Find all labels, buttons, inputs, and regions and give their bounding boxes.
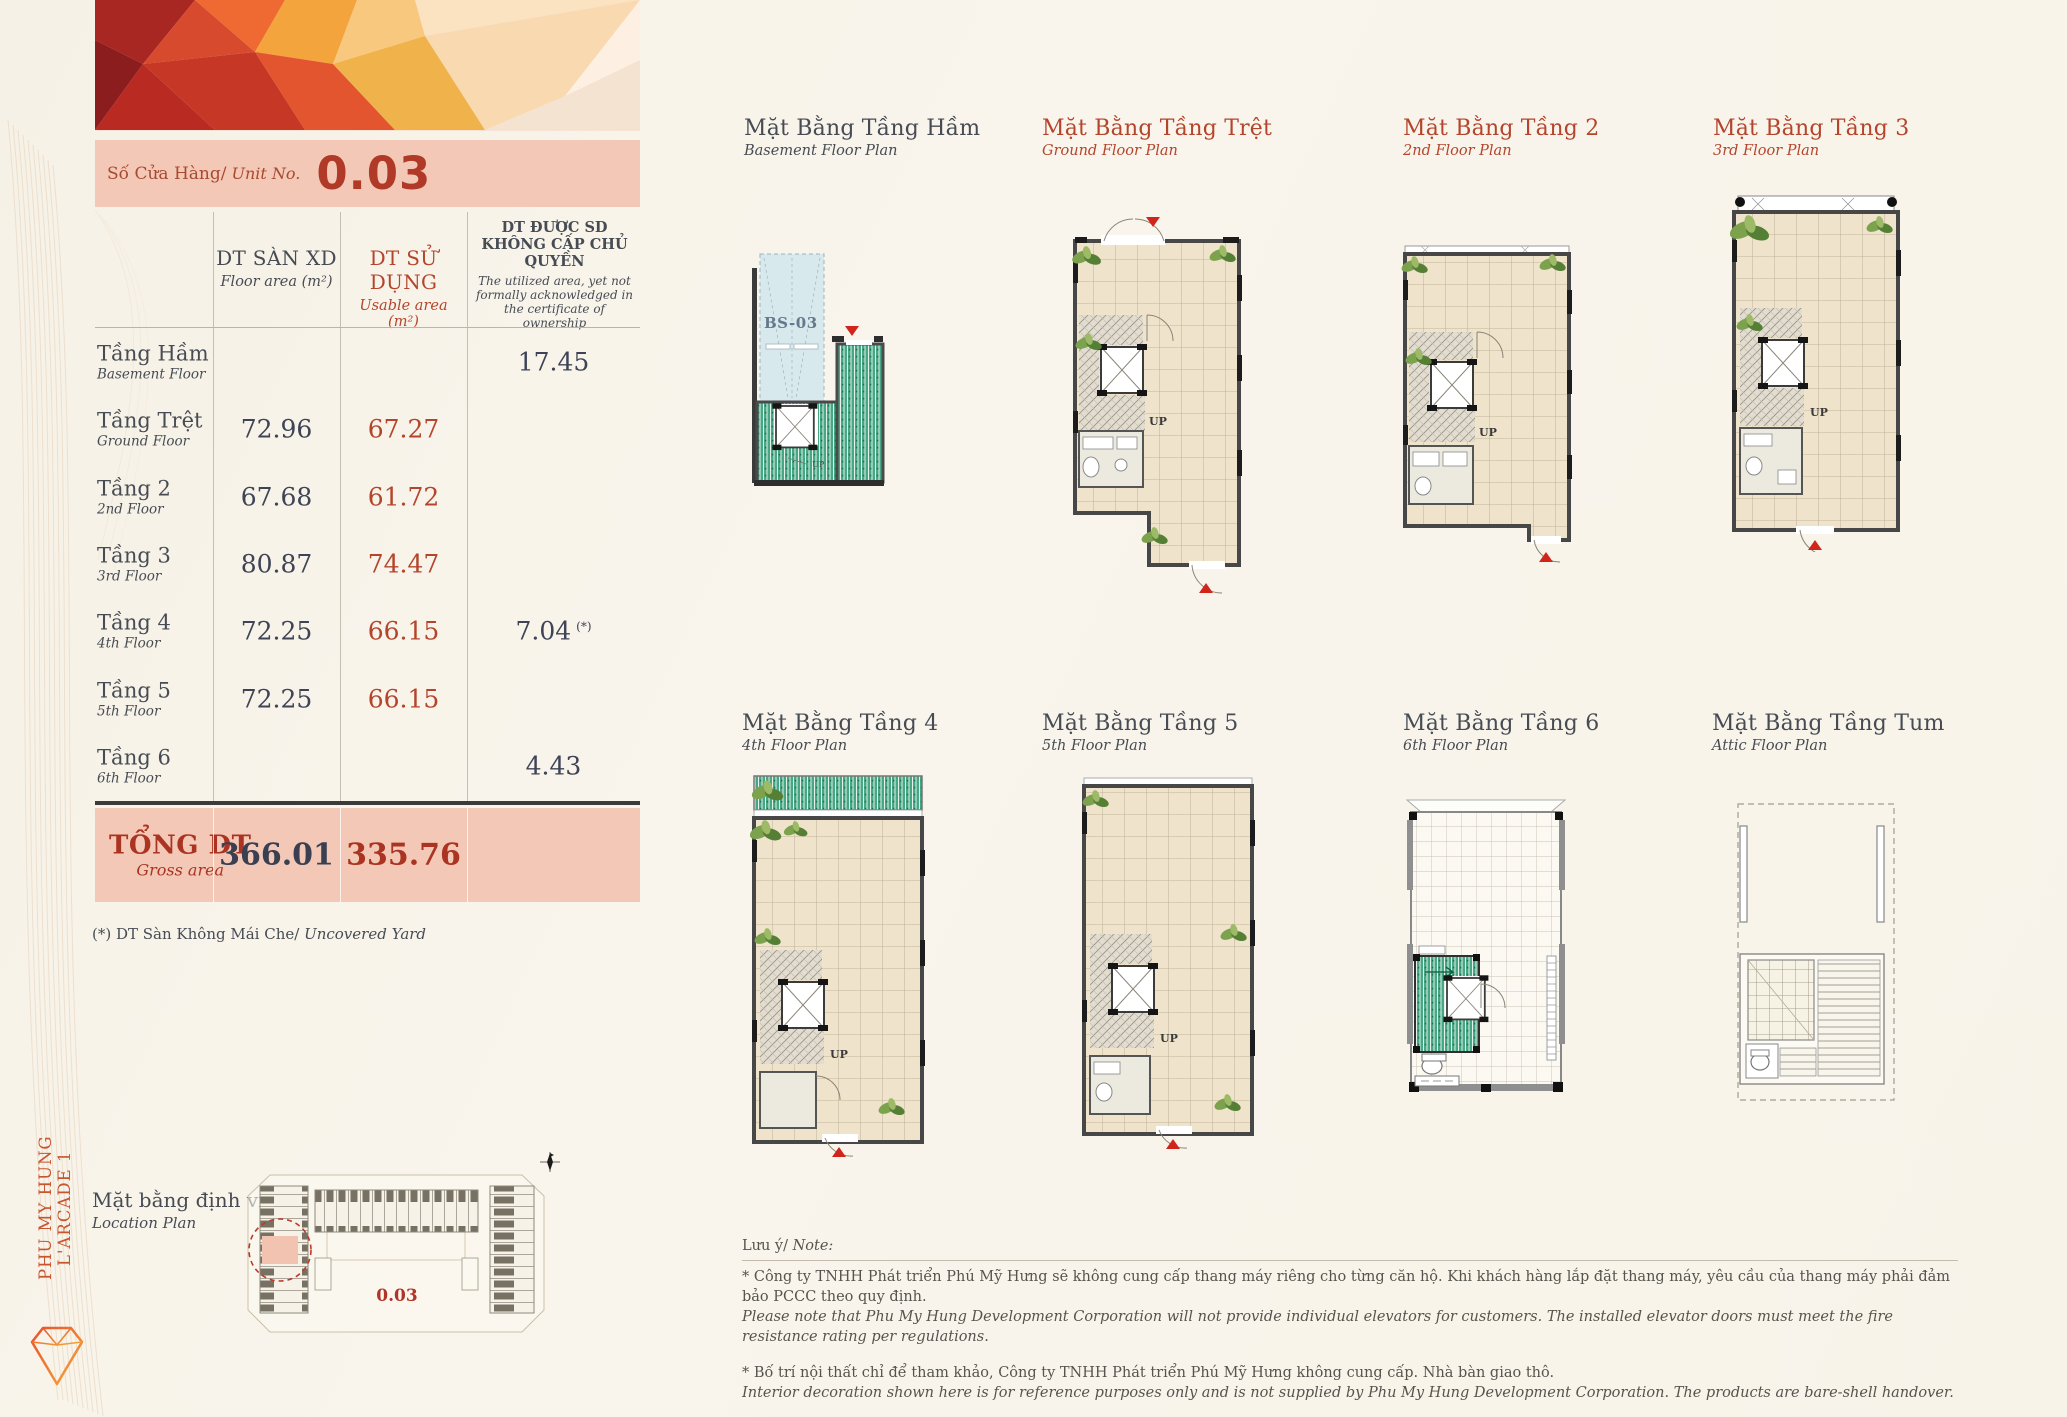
cell-floor-area: 80.87: [213, 549, 340, 578]
up-label: UP: [1160, 1032, 1178, 1045]
ground-floor-plan-drawing: UP: [1071, 215, 1243, 597]
entrance-marker-icon: [845, 326, 859, 336]
elevator-icon: [1097, 344, 1147, 396]
up-label: UP: [1810, 406, 1828, 419]
row-label-en: 2nd Floor: [97, 501, 171, 517]
plan-title-floor-5: Mặt Bằng Tầng 55th Floor Plan: [1042, 711, 1238, 754]
plan-title-floor-6: Mặt Bằng Tầng 66th Floor Plan: [1403, 711, 1599, 754]
third-floor-plan-drawing: UP: [1730, 190, 1902, 552]
table-total-rule: [95, 801, 640, 805]
basement-unit-label: BS-03: [764, 314, 818, 332]
fourth-floor-plan-drawing: UP: [750, 770, 926, 1158]
table-row-floor-3: Tầng 33rd Floor 80.87 74.47: [95, 530, 640, 597]
cell-unack-area: 4.43: [467, 751, 640, 780]
cell-usable-area: 66.15: [340, 684, 467, 713]
row-label-vn: Tầng 5: [97, 678, 171, 702]
plan-title-floor-4: Mặt Bằng Tầng 44th Floor Plan: [742, 711, 938, 754]
highlighted-unit: [262, 1236, 298, 1264]
column-header-usable-area: DT SỬ DỤNG Usable area (m²): [342, 246, 465, 330]
location-title-vn: Mặt bằng định vị: [92, 1188, 265, 1212]
fifth-floor-plan-drawing: UP: [1080, 770, 1256, 1150]
plan-title-floor-3: Mặt Bằng Tầng 33rd Floor Plan: [1713, 116, 1909, 159]
banner-artwork: [95, 0, 640, 131]
table-row-ground: Tầng TrệtGround Floor 72.96 67.27: [95, 395, 640, 462]
note-1-en: Please note that Phu My Hung Development…: [742, 1307, 1958, 1347]
unit-number: 0.03: [316, 147, 431, 200]
up-label: UP: [830, 1048, 848, 1061]
table-footnote: (*) DT Sàn Không Mái Che/ Uncovered Yard: [92, 925, 426, 943]
plan-title-ground: Mặt Bằng Tầng TrệtGround Floor Plan: [1042, 116, 1272, 159]
up-label: UP: [1149, 415, 1167, 428]
sixth-floor-plan-drawing: [1401, 796, 1571, 1108]
elevator-icon: [1443, 975, 1488, 1022]
col-unack-en: The utilized area, yet not formally ackn…: [472, 274, 637, 330]
row-label-vn: Tầng 6: [97, 745, 171, 769]
note-2-en: Interior decoration shown here is for re…: [742, 1383, 1958, 1403]
table-divider: [213, 808, 214, 902]
row-label-en: 4th Floor: [97, 635, 171, 651]
column-header-unacknowledged-area: DT ĐƯỢC SD KHÔNG CẤP CHỦ QUYỀN The utili…: [472, 219, 637, 330]
entrance-marker-icon: [1808, 540, 1822, 550]
location-title-en: Location Plan: [92, 1214, 265, 1232]
row-label-en: 6th Floor: [97, 770, 171, 786]
row-label-vn: Tầng 4: [97, 610, 171, 634]
table-divider: [340, 808, 341, 902]
plan-title-floor-2: Mặt Bằng Tầng 22nd Floor Plan: [1403, 116, 1599, 159]
basement-floor-plan-drawing: BS-03 UP: [748, 248, 908, 490]
location-plan-drawing: 0.03: [240, 1170, 550, 1338]
gem-logo-icon: [28, 1318, 86, 1392]
row-label-en: Basement Floor: [97, 366, 209, 382]
total-floor-area: 366.01: [213, 838, 340, 873]
elevator-icon: [778, 979, 828, 1031]
cell-floor-area: 72.25: [213, 684, 340, 713]
cell-floor-area: 72.25: [213, 616, 340, 645]
row-label-vn: Tầng 3: [97, 543, 171, 567]
table-row-floor-5: Tầng 55th Floor 72.25 66.15: [95, 665, 640, 732]
brand-vertical-text: PHU MY HUNG L'ARCADE 1: [36, 1096, 66, 1320]
unit-label-vn: Số Cửa Hàng/: [107, 164, 226, 184]
plan-title-attic: Mặt Bằng Tầng TumAttic Floor Plan: [1712, 711, 1945, 754]
cell-usable-area: 61.72: [340, 482, 467, 511]
elevator-icon: [1427, 359, 1477, 411]
up-label: UP: [1479, 426, 1497, 439]
unit-number-bar: Số Cửa Hàng/ Unit No. 0.03: [95, 140, 640, 207]
cell-floor-area: 67.68: [213, 482, 340, 511]
row-label-vn: Tầng Hầm: [97, 341, 209, 365]
table-row-floor-2: Tầng 22nd Floor 67.68 61.72: [95, 463, 640, 530]
table-total-row: TỔNG DT Gross area 366.01 335.76: [95, 808, 640, 902]
col-floor-vn: DT SÀN XD: [215, 246, 338, 270]
table-row-floor-4: Tầng 44th Floor 72.25 66.15 7.04(*): [95, 597, 640, 664]
elevator-icon: [772, 403, 817, 450]
total-usable-area: 335.76: [340, 838, 467, 873]
row-label-en: Ground Floor: [97, 433, 202, 449]
footnote-mark: (*): [576, 619, 591, 633]
cell-unack-area: 17.45: [467, 347, 640, 376]
up-label: UP: [812, 460, 825, 469]
row-label-vn: Tầng Trệt: [97, 408, 202, 432]
col-usable-vn: DT SỬ DỤNG: [342, 246, 465, 294]
brochure-page: PHU MY HUNG L'ARCADE 1 Số Cửa Hàng/ Unit…: [0, 0, 2067, 1417]
location-plan-title: Mặt bằng định vị Location Plan: [92, 1188, 265, 1232]
cell-usable-area: 74.47: [340, 549, 467, 578]
col-usable-en: Usable area (m²): [342, 298, 465, 330]
second-floor-plan-drawing: UP: [1401, 240, 1573, 564]
row-label-vn: Tầng 2: [97, 476, 171, 500]
col-floor-en: Floor area (m²): [215, 274, 338, 290]
column-header-floor-area: DT SÀN XD Floor area (m²): [215, 246, 338, 290]
unit-label-en: Unit No.: [231, 164, 300, 183]
notes-heading: Lưu ý/ Note:: [742, 1236, 1958, 1261]
table-row-basement: Tầng HầmBasement Floor 17.45: [95, 328, 640, 395]
row-label-en: 3rd Floor: [97, 568, 171, 584]
location-unit-number: 0.03: [376, 1286, 417, 1306]
note-2-vn: * Bố trí nội thất chỉ để tham khảo, Công…: [742, 1363, 1958, 1383]
plan-title-basement: Mặt Bằng Tầng HầmBasement Floor Plan: [744, 116, 980, 159]
note-1-vn: * Công ty TNHH Phát triển Phú Mỹ Hưng sẽ…: [742, 1267, 1958, 1307]
cell-usable-area: 66.15: [340, 616, 467, 645]
table-divider: [467, 808, 468, 902]
entrance-marker-icon: [832, 1147, 846, 1157]
entrance-marker-icon: [1166, 1139, 1180, 1149]
cell-floor-area: 72.96: [213, 414, 340, 443]
cell-unack-area: 7.04(*): [467, 616, 640, 645]
col-unack-vn: DT ĐƯỢC SD KHÔNG CẤP CHỦ QUYỀN: [472, 219, 637, 270]
table-row-floor-6: Tầng 66th Floor 4.43: [95, 732, 640, 799]
elevator-icon: [1758, 337, 1808, 389]
notes-section: Lưu ý/ Note: * Công ty TNHH Phát triển P…: [742, 1236, 1958, 1403]
cell-usable-area: 67.27: [340, 414, 467, 443]
attic-floor-plan-drawing: [1730, 800, 1902, 1108]
row-label-en: 5th Floor: [97, 703, 171, 719]
elevator-icon: [1108, 963, 1158, 1015]
